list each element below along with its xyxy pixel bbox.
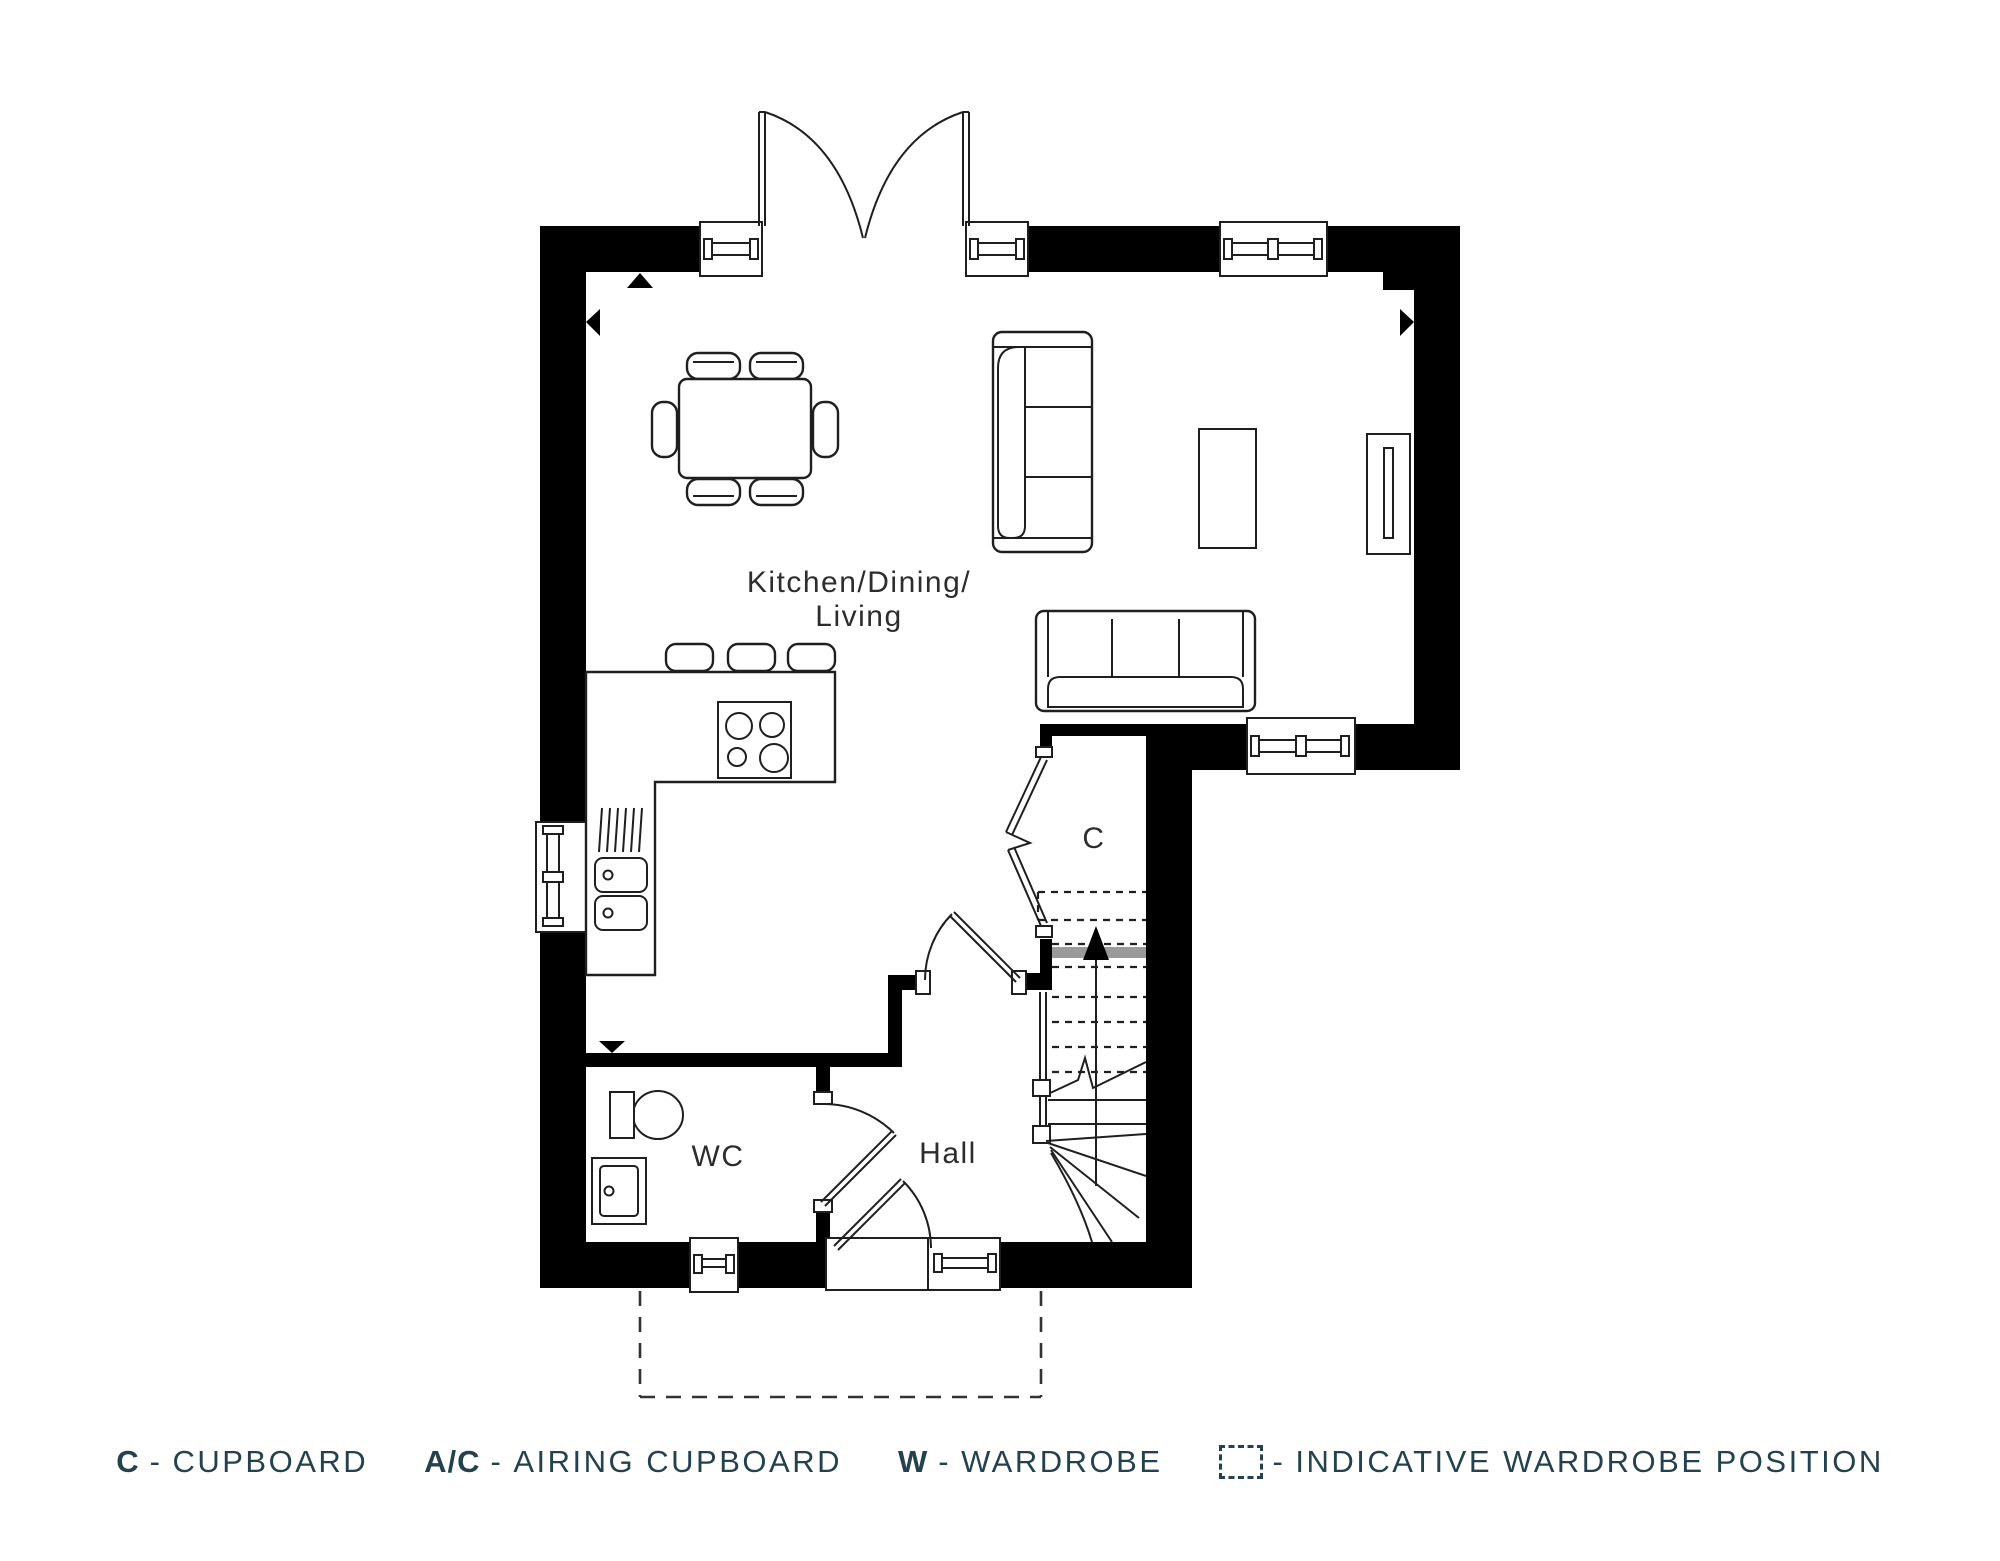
legend-dash: - — [150, 1444, 163, 1480]
legend-label-wardrobe: WARDROBE — [961, 1444, 1162, 1480]
kitchen-hall-door — [916, 912, 1026, 994]
legend-dash: - — [491, 1444, 504, 1480]
window-wc — [690, 1238, 738, 1292]
legend: C - CUPBOARD A/C - AIRING CUPBOARD W - W… — [0, 1444, 2000, 1480]
legend-item-wardrobe: W - WARDROBE — [898, 1444, 1163, 1480]
marker-wc-arrow — [599, 1041, 625, 1053]
cupboard-bifold-doors — [1006, 747, 1052, 937]
toilet-icon — [610, 1091, 683, 1139]
room-label-kitchen-line1: Kitchen/Dining/ — [747, 566, 971, 599]
wc-door — [814, 1092, 896, 1212]
dashed-box-icon — [1219, 1445, 1263, 1479]
bar-stools — [666, 644, 835, 671]
marker-right-arrow — [1400, 309, 1414, 336]
dining-table — [679, 379, 811, 478]
marker-left-arrow — [586, 309, 600, 336]
dining-set — [652, 353, 838, 505]
room-label-wc: WC — [692, 1140, 745, 1173]
hob-icon — [718, 702, 791, 778]
legend-abbr-airing-cupboard: A/C — [424, 1444, 480, 1480]
legend-abbr-cupboard: C — [116, 1444, 139, 1480]
floorplan-page: Kitchen/Dining/ Living C Hall WC C - CUP… — [0, 0, 2000, 1561]
two-seat-sofa — [993, 332, 1092, 552]
legend-label-cupboard: CUPBOARD — [172, 1444, 368, 1480]
marker-top-arrow — [627, 273, 653, 288]
room-label-hall: Hall — [919, 1137, 977, 1170]
room-label-kitchen-line2: Living — [815, 600, 902, 633]
legend-abbr-wardrobe: W — [898, 1444, 928, 1480]
legend-dash: - — [938, 1444, 951, 1480]
floorplan-drawing: Kitchen/Dining/ Living C Hall WC — [0, 0, 2000, 1561]
stairs-up-arrow-icon — [1083, 926, 1109, 1186]
basin-icon — [592, 1158, 646, 1224]
window-top-east — [1220, 222, 1327, 276]
french-doors — [759, 112, 969, 238]
room-label-cupboard: C — [1082, 822, 1105, 855]
legend-item-indicative-wardrobe: - INDICATIVE WARDROBE POSITION — [1219, 1444, 1884, 1480]
window-southeast — [1247, 718, 1355, 774]
legend-label-indicative-wardrobe: INDICATIVE WARDROBE POSITION — [1295, 1444, 1883, 1480]
coffee-table — [1199, 429, 1256, 548]
tv-unit — [1367, 434, 1410, 554]
legend-item-cupboard: C - CUPBOARD — [116, 1444, 368, 1480]
legend-label-airing-cupboard: AIRING CUPBOARD — [513, 1444, 842, 1480]
porch-dashed-outline — [640, 1291, 1041, 1397]
front-door — [826, 1179, 1000, 1290]
legend-dash: - — [1273, 1444, 1286, 1480]
window-top-right-of-door — [966, 222, 1028, 276]
window-top-left — [700, 222, 762, 276]
legend-item-airing-cupboard: A/C - AIRING CUPBOARD — [424, 1444, 842, 1480]
three-seat-sofa — [1036, 611, 1255, 711]
window-kitchen-west — [536, 822, 590, 932]
